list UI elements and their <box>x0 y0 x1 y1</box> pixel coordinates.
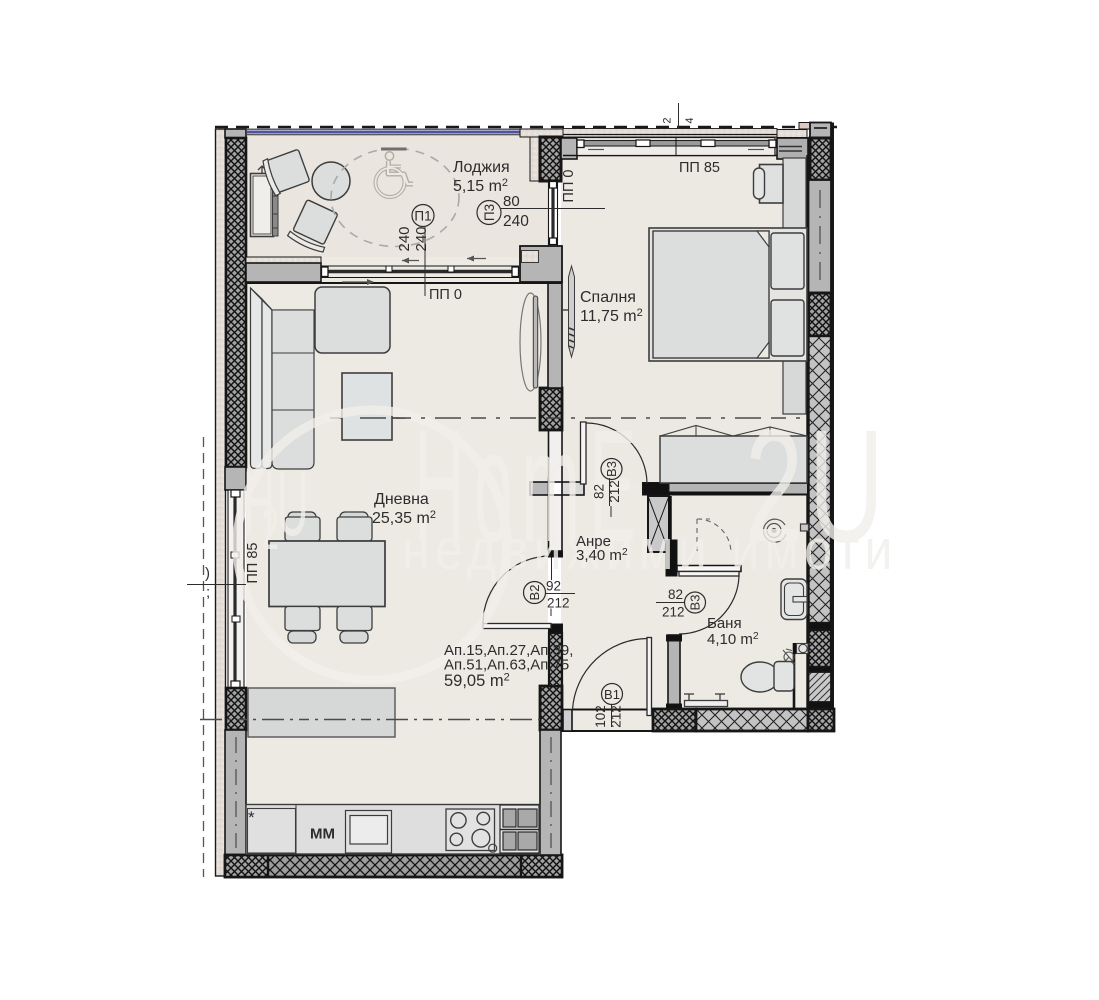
svg-text:Лоджия: Лоджия <box>453 159 510 176</box>
svg-text:Баня: Баня <box>707 615 742 632</box>
svg-text:240: 240 <box>503 213 529 230</box>
svg-text:*: * <box>248 808 255 827</box>
svg-text:П3: П3 <box>482 204 497 221</box>
svg-text:102: 102 <box>593 705 608 728</box>
svg-text:212: 212 <box>609 705 624 728</box>
svg-text:240: 240 <box>396 226 413 251</box>
svg-text:4,10 m2: 4,10 m2 <box>707 630 759 648</box>
svg-text:ПП 85: ПП 85 <box>679 160 720 176</box>
svg-text:П1: П1 <box>414 209 431 224</box>
svg-text:3,40 m2: 3,40 m2 <box>576 546 628 564</box>
svg-text:82: 82 <box>668 587 683 602</box>
svg-text:59,05 m2: 59,05 m2 <box>444 672 510 691</box>
svg-text:В2: В2 <box>527 585 542 601</box>
svg-text:2: 2 <box>662 117 674 123</box>
svg-text:ПП 85: ПП 85 <box>245 542 261 583</box>
svg-text:2: 2 <box>262 496 279 563</box>
svg-text:212: 212 <box>547 596 570 611</box>
svg-text:25,35 m2: 25,35 m2 <box>372 509 436 527</box>
svg-text:4: 4 <box>684 117 696 123</box>
svg-text:212: 212 <box>662 605 685 620</box>
svg-text:240: 240 <box>413 226 430 251</box>
svg-text:В3: В3 <box>604 461 619 477</box>
svg-text:80: 80 <box>503 193 520 210</box>
svg-text:В3: В3 <box>688 595 703 611</box>
svg-text:;: ; <box>206 584 210 601</box>
svg-text:92: 92 <box>546 579 561 594</box>
svg-text:Спалня: Спалня <box>580 289 636 306</box>
svg-text:212: 212 <box>607 480 622 503</box>
svg-text:ММ: ММ <box>310 826 335 843</box>
svg-text:ПП 0: ПП 0 <box>429 287 462 303</box>
svg-text:11,75 m2: 11,75 m2 <box>580 307 643 325</box>
svg-text:Дневна: Дневна <box>374 491 429 508</box>
svg-text:): ) <box>205 565 210 582</box>
svg-text:недвижими имоти: недвижими имоти <box>402 518 898 582</box>
svg-text:82: 82 <box>592 484 607 499</box>
svg-text:5,15 m2: 5,15 m2 <box>453 177 508 195</box>
svg-text:В1: В1 <box>604 687 620 702</box>
svg-text:ПП 0: ПП 0 <box>561 170 577 203</box>
